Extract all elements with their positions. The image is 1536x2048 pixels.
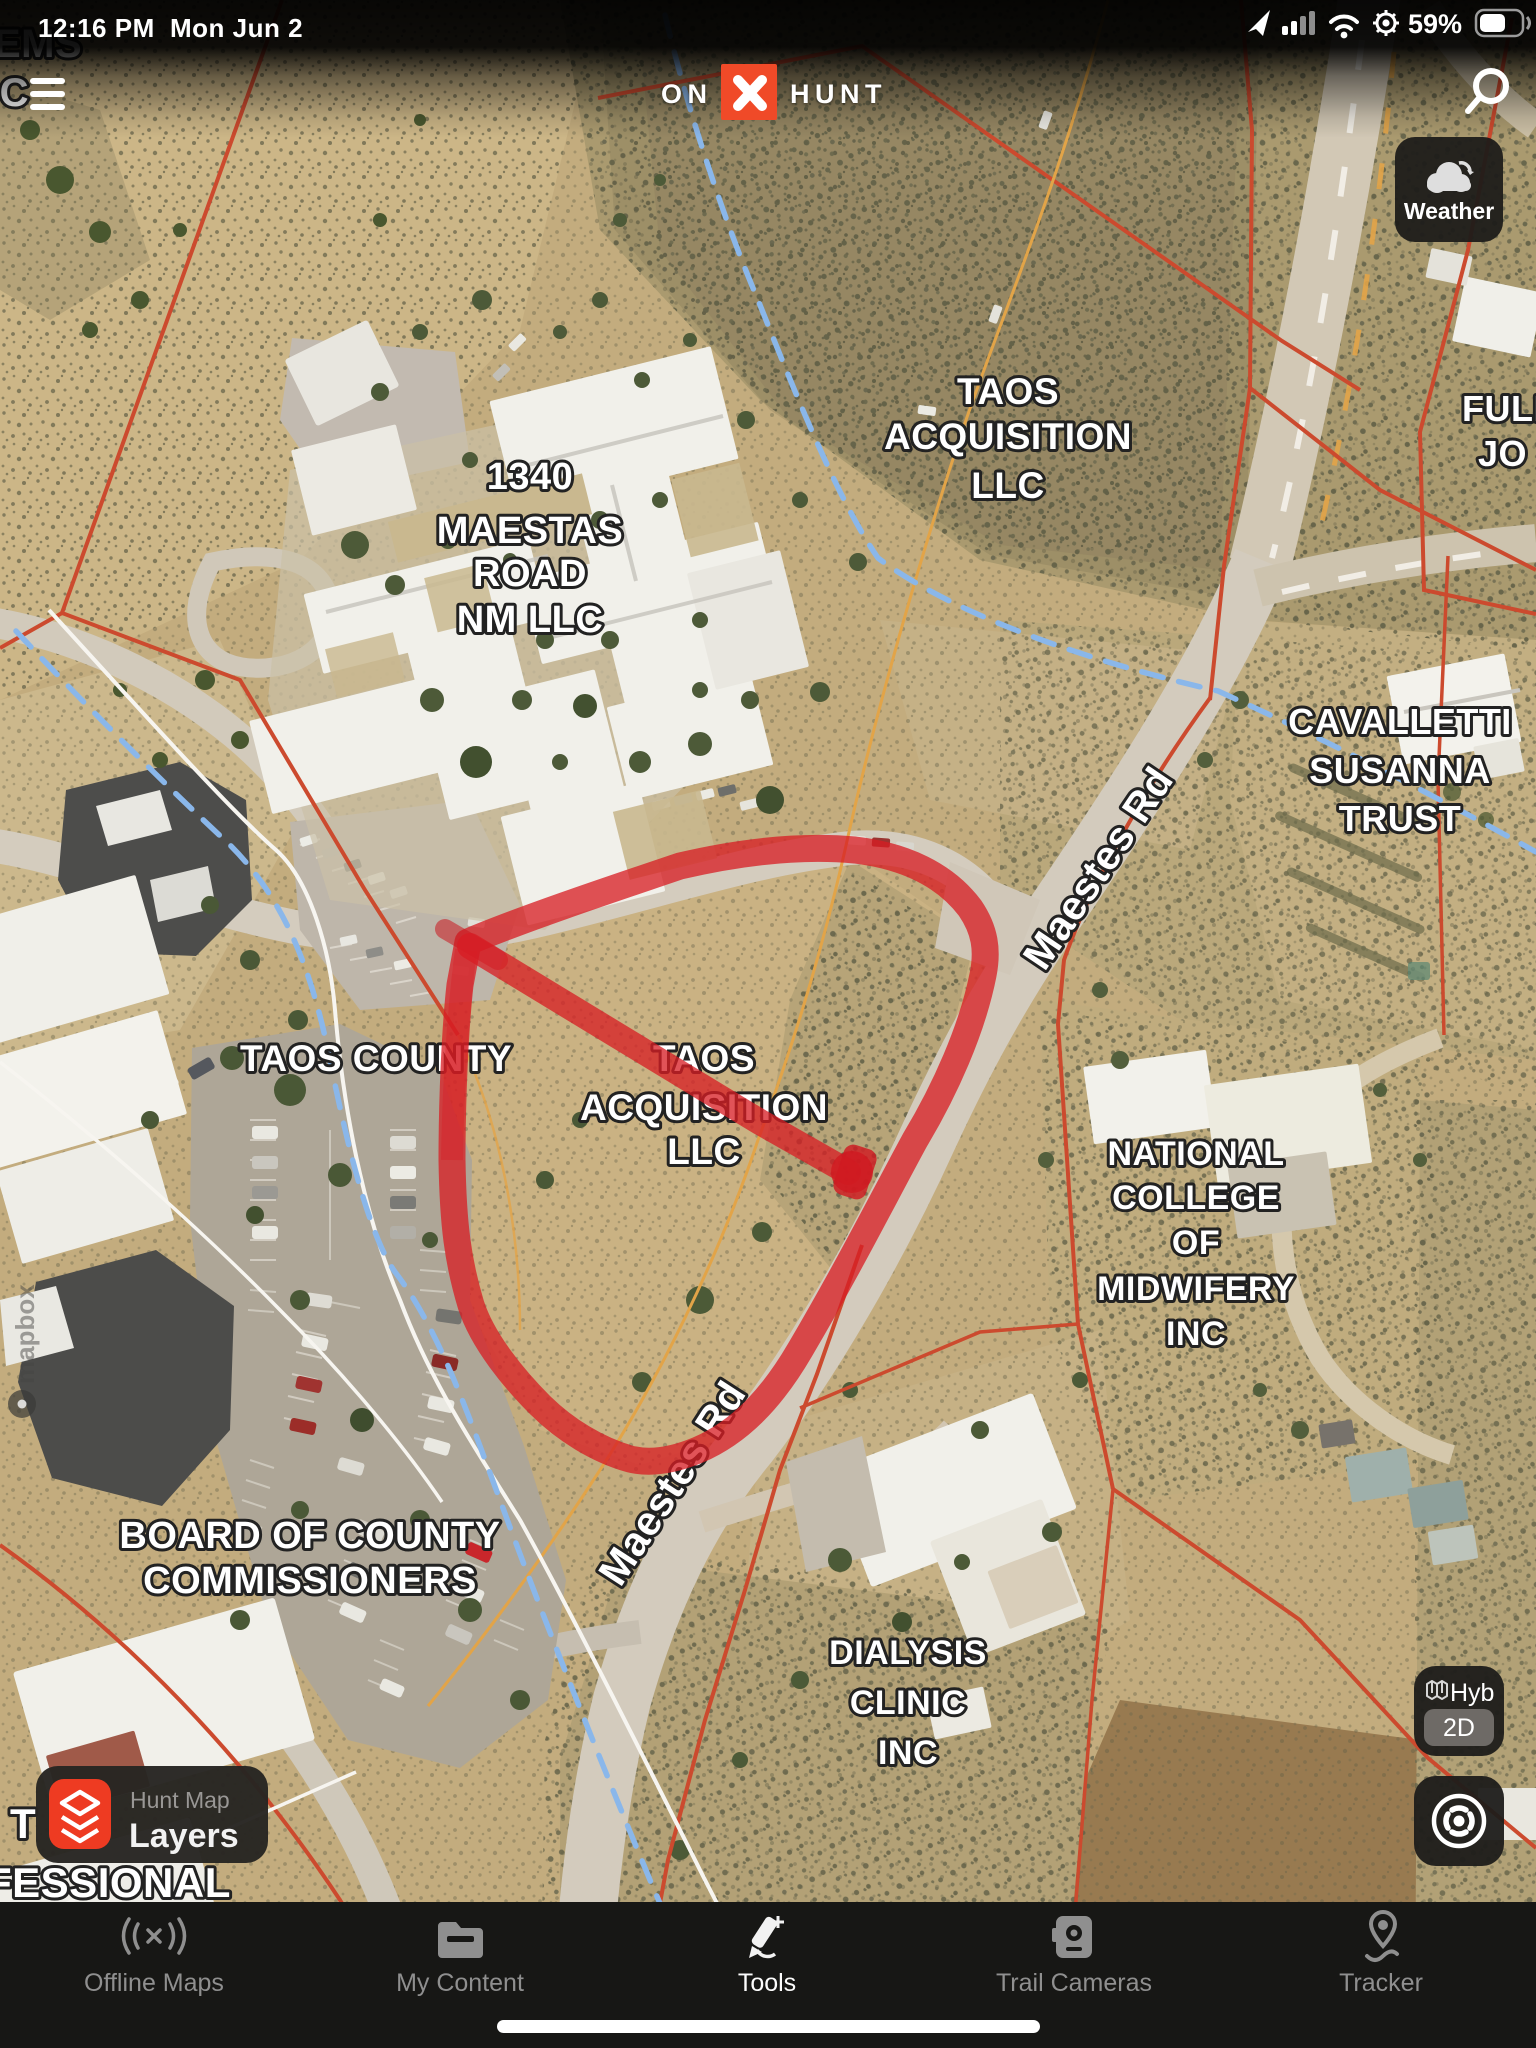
svg-text:COMMISSIONERS: COMMISSIONERS — [143, 1560, 477, 1602]
svg-text:Offline Maps: Offline Maps — [84, 1969, 224, 1997]
svg-text:ON: ON — [661, 79, 713, 109]
svg-text:Hunt Map: Hunt Map — [130, 1787, 230, 1813]
svg-text:Layers: Layers — [129, 1817, 239, 1855]
svg-text:CLINIC: CLINIC — [850, 1684, 966, 1722]
svg-text:T: T — [10, 1800, 36, 1847]
svg-text:MAESTAS: MAESTAS — [437, 510, 623, 552]
svg-text:ACQUISITION: ACQUISITION — [884, 416, 1132, 457]
svg-text:COLLEGE: COLLEGE — [1112, 1179, 1280, 1217]
svg-text:HUNT: HUNT — [790, 79, 887, 109]
svg-text:TAOS: TAOS — [957, 371, 1059, 412]
svg-text:TRUST: TRUST — [1339, 798, 1462, 839]
svg-text:NATIONAL: NATIONAL — [1107, 1135, 1284, 1173]
svg-text:SUSANNA: SUSANNA — [1309, 750, 1491, 791]
svg-text:Trail Cameras: Trail Cameras — [996, 1969, 1152, 1997]
svg-text:1340: 1340 — [487, 456, 574, 498]
svg-text:FULL: FULL — [1462, 388, 1536, 429]
svg-text:JO: JO — [1478, 433, 1527, 474]
svg-text:Tools: Tools — [738, 1969, 796, 1997]
svg-text:DIALYSIS: DIALYSIS — [829, 1634, 987, 1672]
svg-text:INC: INC — [878, 1734, 938, 1772]
svg-text:FESSIONAL: FESSIONAL — [0, 1859, 231, 1906]
svg-text:Hyb: Hyb — [1450, 1679, 1494, 1707]
svg-text:BOARD OF COUNTY: BOARD OF COUNTY — [119, 1515, 500, 1557]
svg-text:Tracker: Tracker — [1339, 1969, 1423, 1997]
svg-text:MIDWIFERY: MIDWIFERY — [1097, 1270, 1295, 1308]
svg-text:TAOS COUNTY: TAOS COUNTY — [240, 1038, 512, 1079]
svg-text:LLC: LLC — [667, 1131, 740, 1172]
svg-text:12:16 PM: 12:16 PM — [38, 13, 155, 43]
svg-text:OF: OF — [1172, 1224, 1220, 1262]
svg-text:Mon Jun 2: Mon Jun 2 — [170, 13, 303, 43]
svg-text:mapbox: mapbox — [10, 1284, 40, 1384]
svg-text:My Content: My Content — [396, 1969, 524, 1997]
svg-text:LLC: LLC — [971, 465, 1044, 506]
svg-text:Weather: Weather — [1404, 198, 1494, 224]
svg-text:ROAD: ROAD — [473, 553, 587, 595]
svg-text:NM LLC: NM LLC — [457, 599, 604, 641]
svg-text:CAVALLETTI: CAVALLETTI — [1288, 701, 1512, 742]
svg-text:2D: 2D — [1443, 1714, 1475, 1742]
svg-text:INC: INC — [1166, 1315, 1226, 1353]
svg-text:59%: 59% — [1408, 9, 1462, 39]
